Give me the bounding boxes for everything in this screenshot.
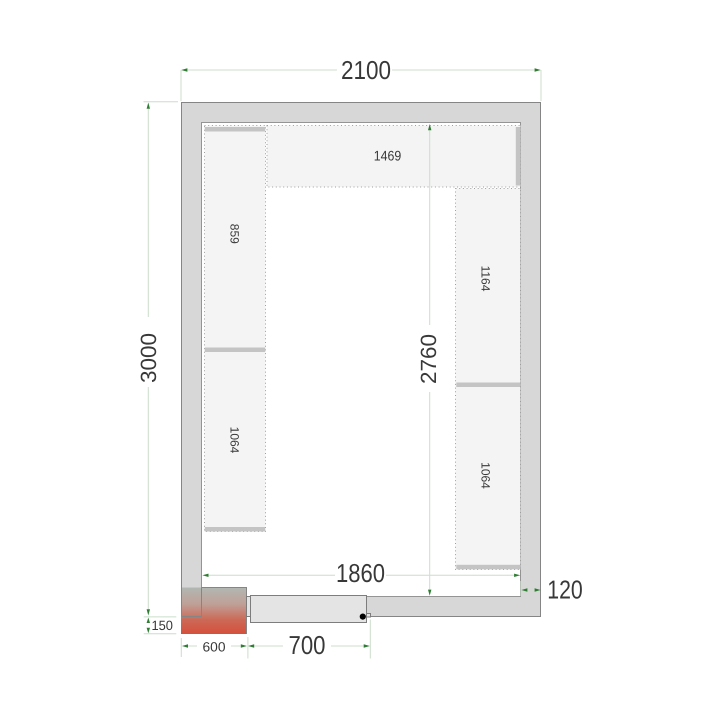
svg-text:2760: 2760 <box>416 334 441 384</box>
svg-text:859: 859 <box>228 224 242 244</box>
svg-text:150: 150 <box>151 618 173 633</box>
svg-text:700: 700 <box>289 630 326 660</box>
svg-text:1860: 1860 <box>336 558 385 588</box>
svg-text:2100: 2100 <box>341 55 391 85</box>
svg-text:3000: 3000 <box>136 333 161 383</box>
svg-text:1469: 1469 <box>374 147 402 163</box>
svg-text:1064: 1064 <box>479 462 493 489</box>
svg-text:1064: 1064 <box>228 427 242 454</box>
svg-text:1164: 1164 <box>479 266 493 292</box>
svg-text:600: 600 <box>203 639 226 654</box>
svg-text:120: 120 <box>547 574 583 604</box>
